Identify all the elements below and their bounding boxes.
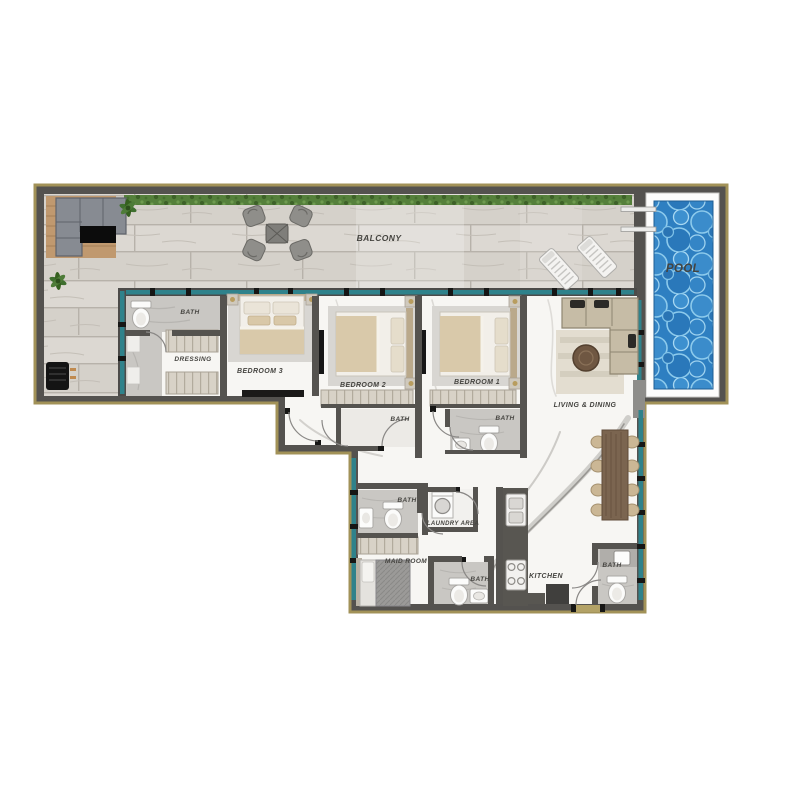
bath2-label: BATH xyxy=(390,416,409,423)
balcony-label: BALCONY xyxy=(357,233,403,243)
guest-bath xyxy=(434,562,490,605)
glazed-wall-left xyxy=(118,288,126,396)
glazed-wall-top xyxy=(118,288,637,296)
tv-icon xyxy=(319,330,324,374)
bedroom1-closet xyxy=(430,390,516,406)
hedge-planter xyxy=(124,195,632,205)
bath-bedroom2-floor xyxy=(341,409,415,447)
kitchen-island-icon xyxy=(546,584,569,604)
coffee-table-icon xyxy=(573,345,599,371)
bedroom2-closet xyxy=(321,390,413,406)
floor-plan-page: POOL xyxy=(0,0,800,800)
bath1-label: BATH xyxy=(495,415,514,422)
guest-bath-label: BATH xyxy=(470,576,489,583)
bedroom3-label: BEDROOM 3 xyxy=(237,368,283,375)
powder-bath xyxy=(598,549,637,604)
bedroom1-label: BEDROOM 1 xyxy=(454,379,500,386)
laundry-label: LAUNDRY AREA xyxy=(427,521,479,527)
pool-area: POOL xyxy=(646,193,719,397)
pool-label: POOL xyxy=(666,263,700,275)
tv-console-icon xyxy=(242,390,304,397)
bedroom2-furniture xyxy=(319,296,418,389)
maid-bath-label: BATH xyxy=(397,497,416,504)
outdoor-mat-icon xyxy=(80,226,116,243)
living-label: LIVING & DINING xyxy=(554,402,617,409)
entrance-threshold xyxy=(576,605,600,612)
maid-room-label: MAID ROOM xyxy=(385,558,427,565)
dressing-label: DRESSING xyxy=(174,356,211,363)
bath3-label: BATH xyxy=(180,309,199,316)
kitchen-label: KITCHEN xyxy=(529,573,563,580)
bedroom2-label: BEDROOM 2 xyxy=(340,382,386,389)
bedroom1-furniture xyxy=(421,296,522,389)
powder-bath-label: BATH xyxy=(602,562,621,569)
floor-plan-canvas: POOL xyxy=(0,0,800,800)
maid-room-furniture xyxy=(356,537,418,606)
